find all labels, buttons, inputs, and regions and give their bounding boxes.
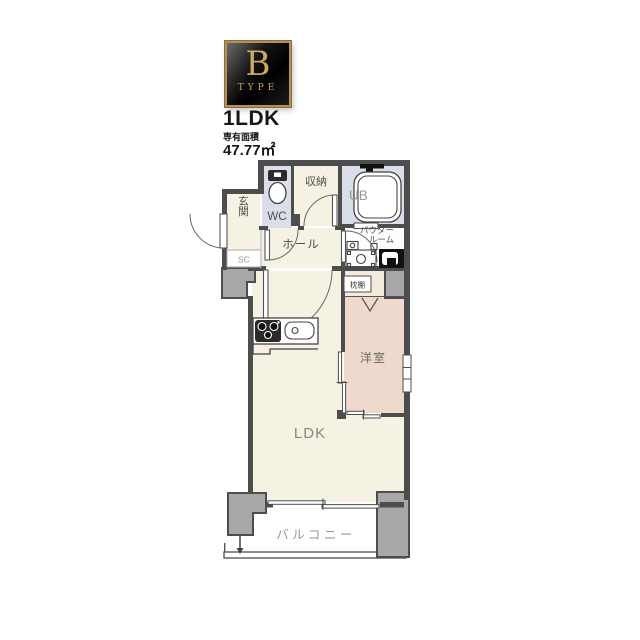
wall-wc-left-exterior	[258, 160, 264, 194]
pillar-left-top	[222, 268, 255, 298]
entrance-door-leaf	[220, 214, 227, 248]
wall-entrance-left-upper	[222, 189, 227, 215]
wall-entrance-top	[222, 189, 262, 194]
pillow-shelf-label: 枕棚	[350, 280, 365, 290]
stove-burner-2	[270, 323, 278, 331]
bath-label: UB	[349, 188, 368, 203]
toilet-bowl	[269, 183, 286, 204]
wall-bath-left	[338, 160, 342, 226]
wall-storage-inner-post	[293, 214, 300, 226]
wall-wc-bottom-stub	[259, 226, 268, 230]
stove-burner-1	[258, 323, 266, 331]
shoe-closet-label: SC	[238, 255, 250, 265]
hall-label: ホール	[282, 238, 320, 251]
floorplan-page: B TYPE 1LDK 専有面積 47.77㎡	[0, 0, 640, 640]
toilet-icon	[268, 170, 287, 204]
wall-ldk-left	[248, 296, 253, 494]
wc-label: WC	[267, 211, 286, 223]
pillar-bottom-right	[377, 492, 409, 557]
wall-bottom-right-stub	[380, 502, 404, 508]
storage-door-leaf	[333, 195, 338, 226]
western-room-label: 洋室	[360, 350, 386, 365]
stove-dot	[277, 321, 279, 323]
powder-room-label-line2: ルーム	[369, 235, 394, 245]
powder-door-leaf	[342, 231, 346, 262]
balcony-slider-panel2	[322, 505, 379, 509]
western-bottom-slider-panel1	[347, 411, 364, 414]
western-right-window	[403, 355, 411, 392]
ldk-floor-right	[341, 415, 404, 502]
western-bottom-slider-panel2	[363, 415, 380, 418]
western-left-slider-panel2	[342, 382, 345, 413]
toilet-button	[274, 173, 281, 178]
vanity-icon	[379, 249, 404, 268]
vanity-bowl	[387, 258, 396, 265]
balcony-label: バルコニー	[276, 528, 356, 542]
balcony-slider-panel1	[268, 501, 325, 505]
entrance-door-swing	[190, 214, 224, 248]
wall-entrance-left-lower	[222, 248, 227, 270]
wall-right	[404, 160, 410, 500]
wall-western-bottom	[381, 413, 404, 417]
entrance-label: 玄関	[237, 195, 249, 218]
western-left-slider-panel1	[338, 352, 341, 383]
storage-label: 収納	[305, 175, 327, 188]
wall-top	[258, 160, 410, 166]
pillar-bottom-left	[228, 493, 266, 535]
wall-storage-right-stub	[335, 226, 342, 230]
wc-door-leaf	[265, 230, 270, 260]
ldk-label: LDK	[294, 425, 326, 442]
floorplan-drawing: WC 収納 UB 玄関 SC ホール パウダー ルーム 枕棚 洋室 LDK バル…	[0, 0, 640, 640]
stove-burner-3	[265, 332, 272, 339]
wall-storage-bottom-stub	[298, 226, 304, 230]
powder-room-label-line1: パウダー	[360, 225, 394, 235]
bath-counter	[360, 164, 384, 169]
pillar-right-mid	[385, 268, 406, 298]
wall-hall-ldk-right-stub	[332, 266, 341, 271]
